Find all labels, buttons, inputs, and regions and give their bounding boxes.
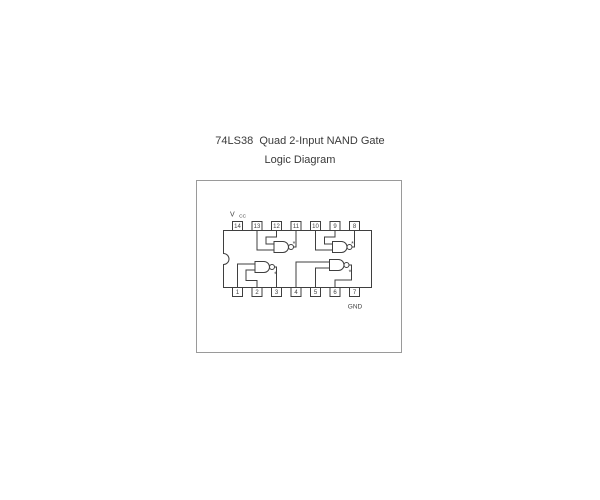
- inverter-bubble: [344, 263, 349, 268]
- gnd-label: GND: [348, 304, 363, 311]
- nand-gate-bottom-left: *: [238, 262, 278, 288]
- wire-pin5-input: [316, 268, 330, 288]
- diagram-border: [197, 181, 402, 353]
- pin-number: 11: [293, 224, 300, 230]
- pin-6: 6: [330, 288, 340, 297]
- pin-5: 5: [311, 288, 321, 297]
- pin-4: 4: [291, 288, 301, 297]
- pin-11: 11: [291, 222, 301, 231]
- nand-gate-body: [333, 242, 348, 253]
- wire-pin4-input: [296, 262, 330, 288]
- pin-number: 14: [234, 224, 241, 230]
- pin-number: 10: [312, 224, 319, 230]
- open-collector-mark: *: [274, 272, 277, 279]
- nand-gate-body: [330, 260, 345, 271]
- nand-gate-body: [274, 242, 289, 253]
- pin-13: 13: [252, 222, 262, 231]
- nand-gate-bottom-right: *: [296, 260, 352, 288]
- pin-3: 3: [272, 288, 282, 297]
- pin-14: 14: [233, 222, 243, 231]
- nand-gate-top-right: *: [316, 231, 355, 253]
- pin-9: 9: [330, 222, 340, 231]
- pin-2: 2: [252, 288, 262, 297]
- vcc-label-sub: CC: [239, 214, 246, 220]
- pin-number: 13: [254, 224, 261, 230]
- pin-8: 8: [350, 222, 360, 231]
- nand-gate-body: [255, 262, 270, 273]
- inverter-bubble: [270, 265, 275, 270]
- open-collector-mark: *: [351, 241, 354, 248]
- pin-7: 7: [350, 288, 360, 297]
- open-collector-mark: *: [293, 241, 296, 248]
- open-collector-mark: *: [349, 270, 352, 277]
- vcc-label: V CC: [230, 204, 247, 221]
- nand-gate-top-left: *: [257, 231, 296, 253]
- vcc-label-main: V: [230, 212, 235, 219]
- pin-1: 1: [233, 288, 243, 297]
- pin-10: 10: [311, 222, 321, 231]
- pin-number: 12: [273, 224, 280, 230]
- page: 74LS38 Quad 2-Input NAND Gate Logic Diag…: [0, 0, 600, 500]
- logic-diagram-canvas: * * * *: [0, 0, 600, 500]
- pin-12: 12: [272, 222, 282, 231]
